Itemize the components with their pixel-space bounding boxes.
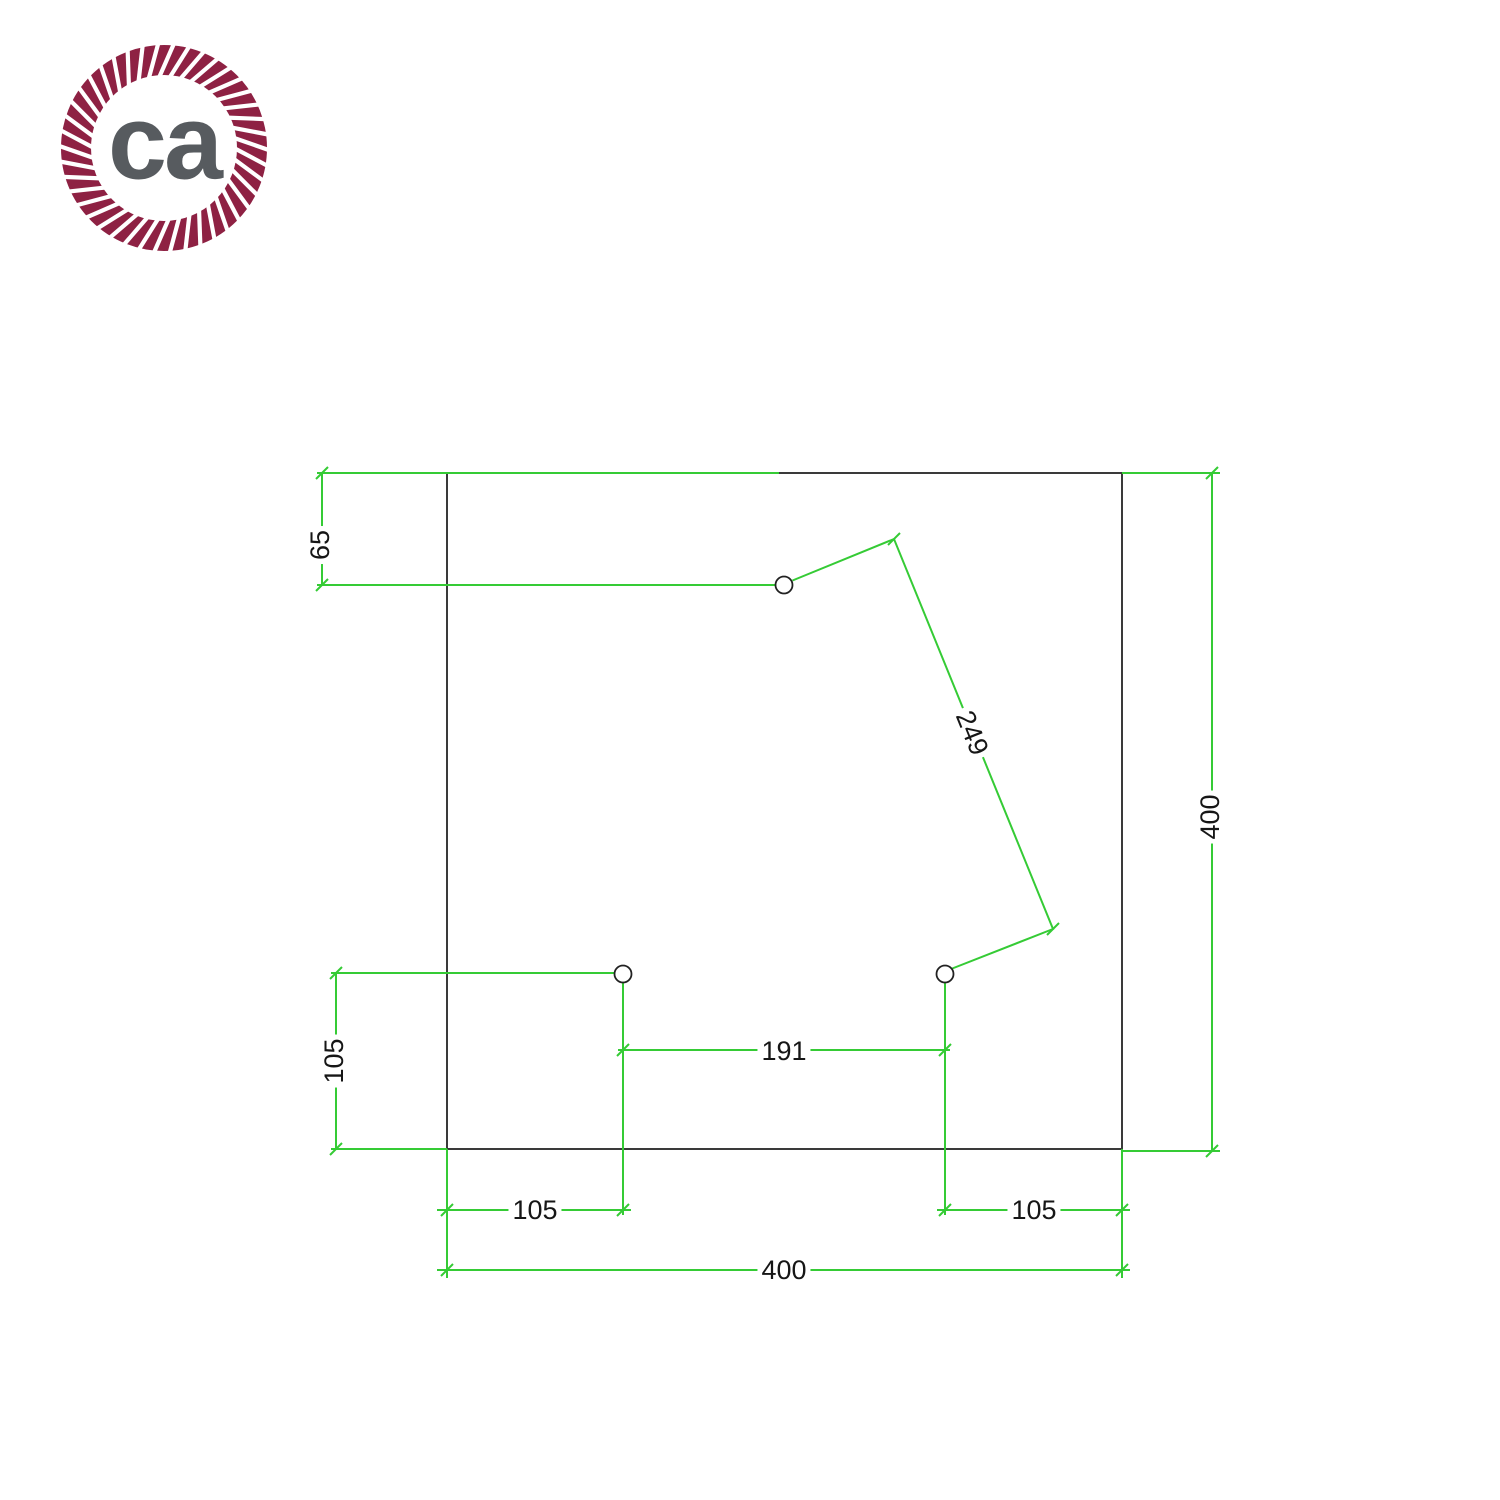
dim-label-top-hole-from-top: 65 [306,526,334,564]
hole-top [776,577,793,594]
dimension-ticks [316,467,1218,1276]
hole-bottom-right [937,966,954,983]
dim-label-square-width: 400 [757,1256,810,1284]
technical-drawing: 65 105 191 105 105 400 400 249 [0,0,1500,1500]
dimension-lines [316,467,1220,1278]
dim-label-square-height: 400 [1196,790,1224,843]
drawing-canvas [0,0,1500,1500]
dim-label-holes-spacing: 191 [757,1037,810,1065]
dim-249-line [793,539,1054,969]
dim-label-left-hole-from-bottom: 105 [320,1034,348,1087]
dim-label-left-hole-from-left: 105 [508,1196,561,1224]
hole-bottom-left [615,966,632,983]
dim-label-right-hole-from-right: 105 [1007,1196,1060,1224]
